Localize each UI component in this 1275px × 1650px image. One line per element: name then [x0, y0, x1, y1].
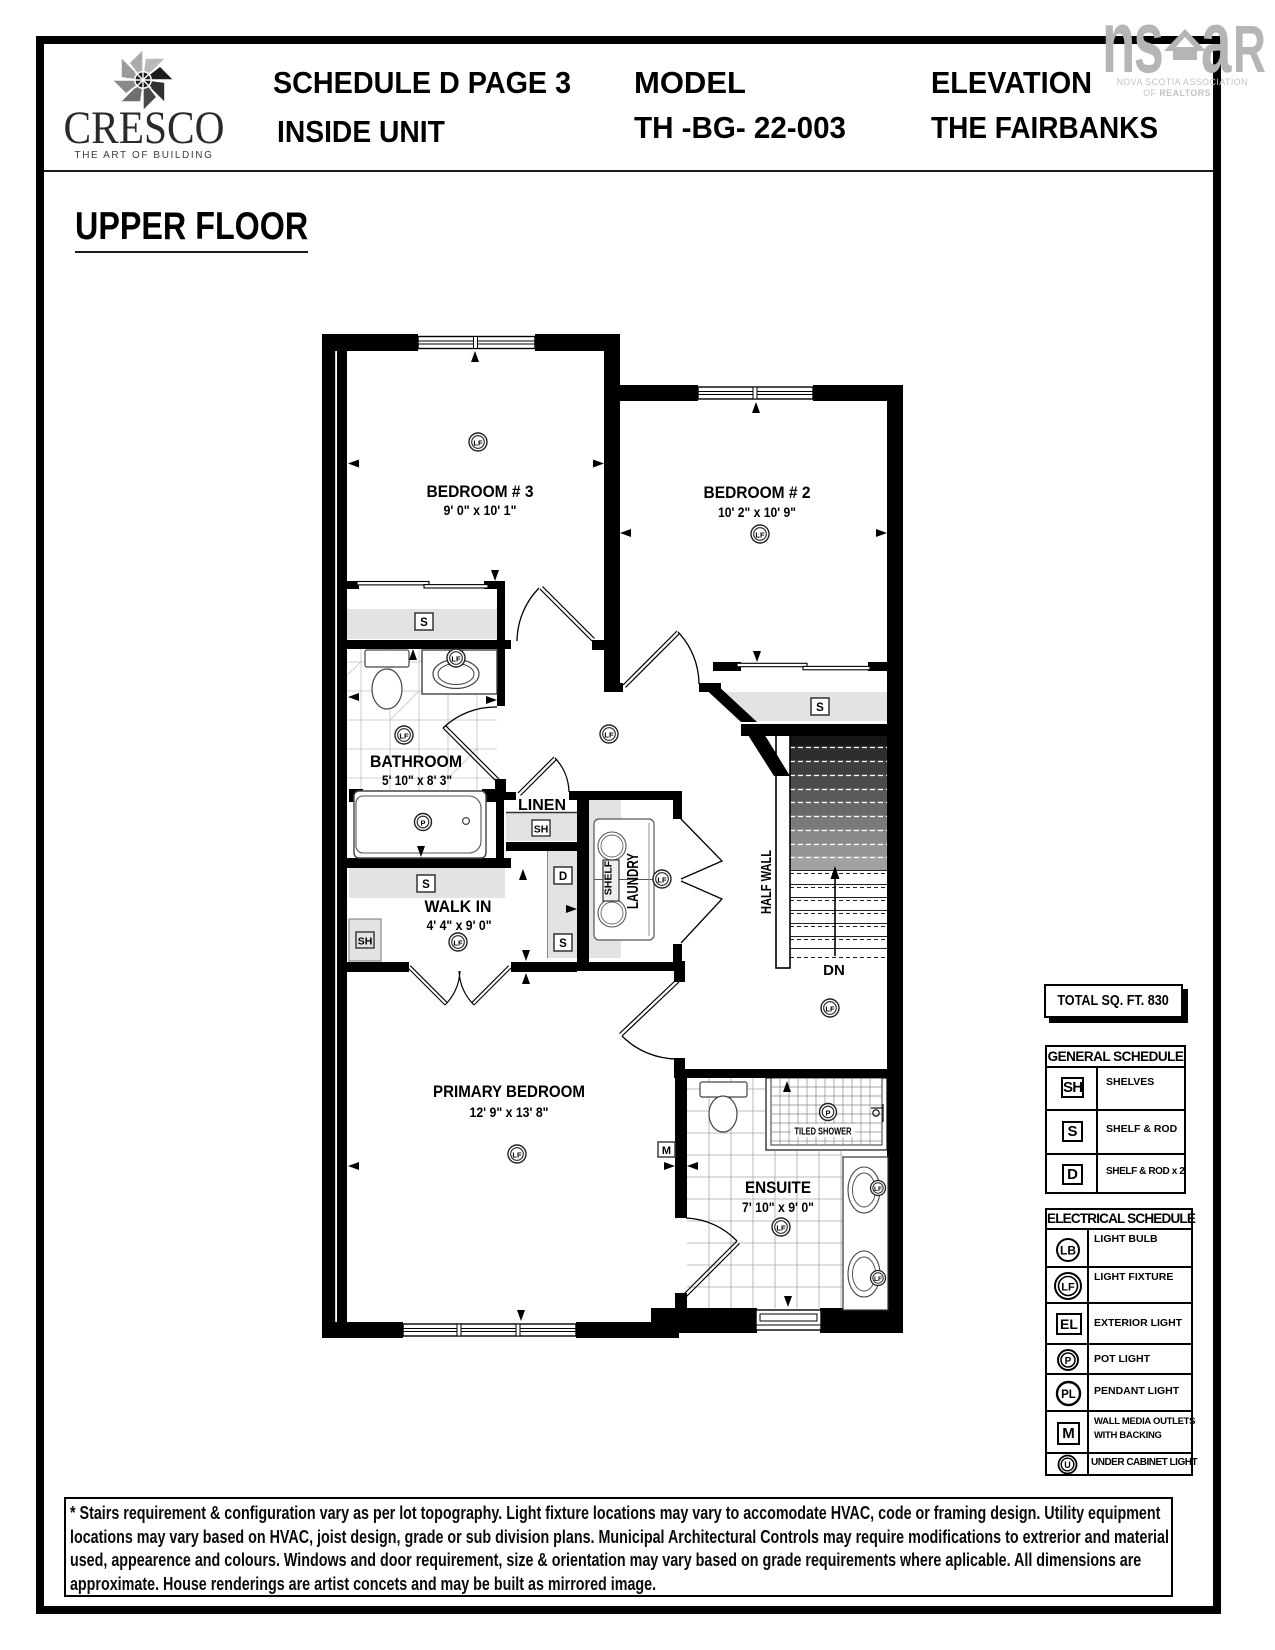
svg-text:4' 4" x 9' 0": 4' 4" x 9' 0"	[427, 918, 492, 933]
svg-text:HALF WALL: HALF WALL	[759, 850, 775, 914]
svg-text:BEDROOM # 2: BEDROOM # 2	[704, 483, 811, 502]
svg-text:P: P	[1065, 1356, 1072, 1367]
svg-text:P: P	[420, 819, 425, 828]
svg-text:LINEN: LINEN	[518, 797, 566, 814]
svg-text:LF: LF	[874, 1186, 882, 1193]
svg-text:LF: LF	[825, 1005, 835, 1014]
svg-text:TILED SHOWER: TILED SHOWER	[795, 1126, 852, 1138]
svg-text:10' 2" x 10' 9": 10' 2" x 10' 9"	[718, 505, 796, 520]
svg-text:LF: LF	[604, 731, 614, 740]
svg-text:SHELF: SHELF	[603, 860, 615, 895]
svg-text:LF: LF	[512, 1151, 522, 1160]
svg-text:LF: LF	[776, 1224, 786, 1233]
svg-text:LB: LB	[1060, 1244, 1076, 1258]
svg-text:LF: LF	[755, 531, 765, 540]
svg-text:LF: LF	[657, 876, 667, 885]
svg-text:LF: LF	[399, 732, 409, 741]
svg-text:LF: LF	[473, 439, 483, 448]
svg-text:SH: SH	[534, 824, 549, 836]
svg-text:D: D	[559, 871, 567, 883]
svg-text:LF: LF	[874, 1276, 882, 1283]
svg-text:DN: DN	[823, 962, 845, 979]
svg-text:LAUNDRY: LAUNDRY	[625, 853, 642, 909]
svg-text:PL: PL	[1061, 1389, 1076, 1401]
svg-text:S: S	[559, 938, 567, 950]
svg-text:LF: LF	[1061, 1282, 1075, 1294]
svg-text:ENSUITE: ENSUITE	[745, 1178, 811, 1197]
svg-text:SH: SH	[358, 936, 373, 948]
svg-text:S: S	[420, 617, 428, 629]
svg-text:U: U	[1064, 1460, 1071, 1470]
svg-text:7' 10" x 9' 0": 7' 10" x 9' 0"	[742, 1200, 814, 1215]
svg-text:S: S	[816, 702, 824, 714]
svg-text:P: P	[825, 1109, 830, 1118]
svg-text:LF: LF	[451, 655, 461, 664]
svg-text:BEDROOM # 3: BEDROOM # 3	[427, 482, 534, 501]
svg-text:PRIMARY BEDROOM: PRIMARY BEDROOM	[433, 1082, 585, 1101]
svg-text:WALK IN: WALK IN	[425, 898, 492, 916]
svg-text:9' 0" x 10' 1": 9' 0" x 10' 1"	[444, 503, 517, 518]
svg-text:LF: LF	[453, 939, 463, 948]
svg-text:S: S	[422, 879, 430, 891]
svg-text:M: M	[662, 1145, 671, 1157]
svg-text:BATHROOM: BATHROOM	[370, 753, 462, 771]
svg-text:12' 9" x 13' 8": 12' 9" x 13' 8"	[470, 1105, 549, 1120]
svg-text:5' 10" x 8' 3": 5' 10" x 8' 3"	[382, 773, 452, 788]
